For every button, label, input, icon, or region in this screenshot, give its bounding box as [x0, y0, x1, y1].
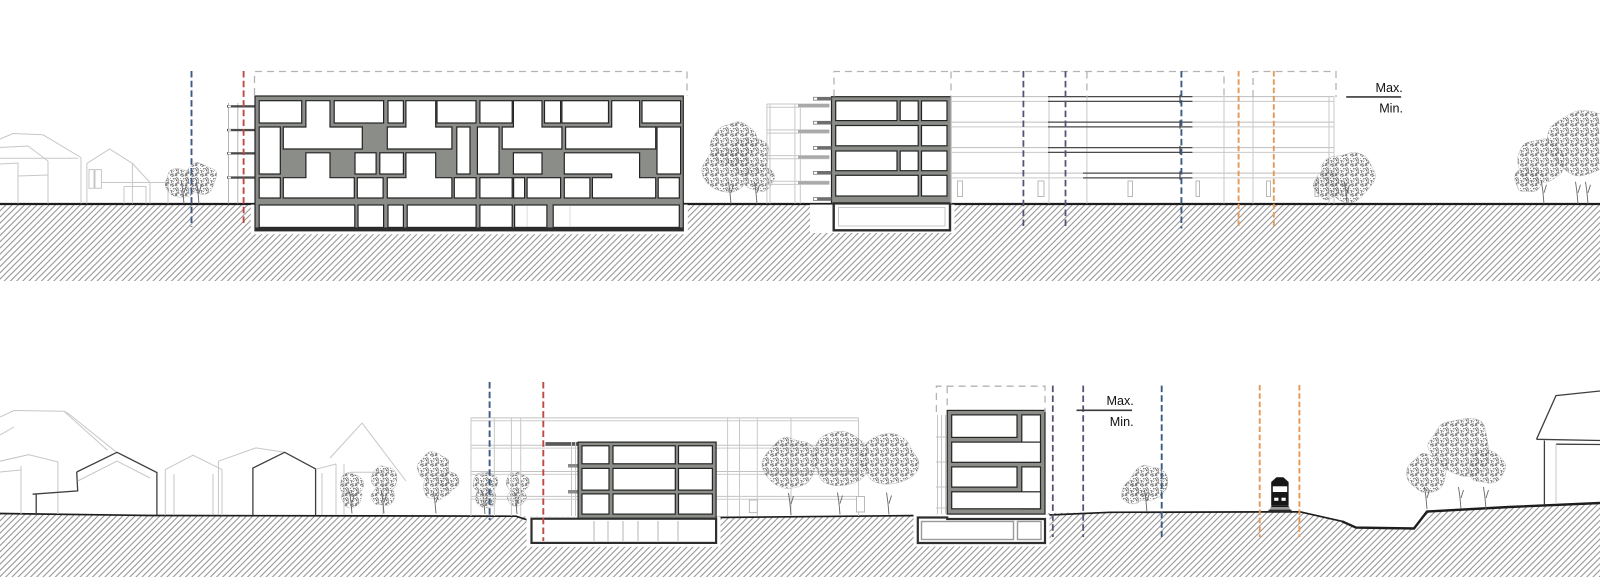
svg-text:Max.: Max.: [1376, 81, 1403, 95]
svg-text:Min.: Min.: [1110, 415, 1134, 429]
svg-text:Min.: Min.: [1379, 102, 1403, 116]
svg-text:Max.: Max.: [1107, 394, 1134, 408]
